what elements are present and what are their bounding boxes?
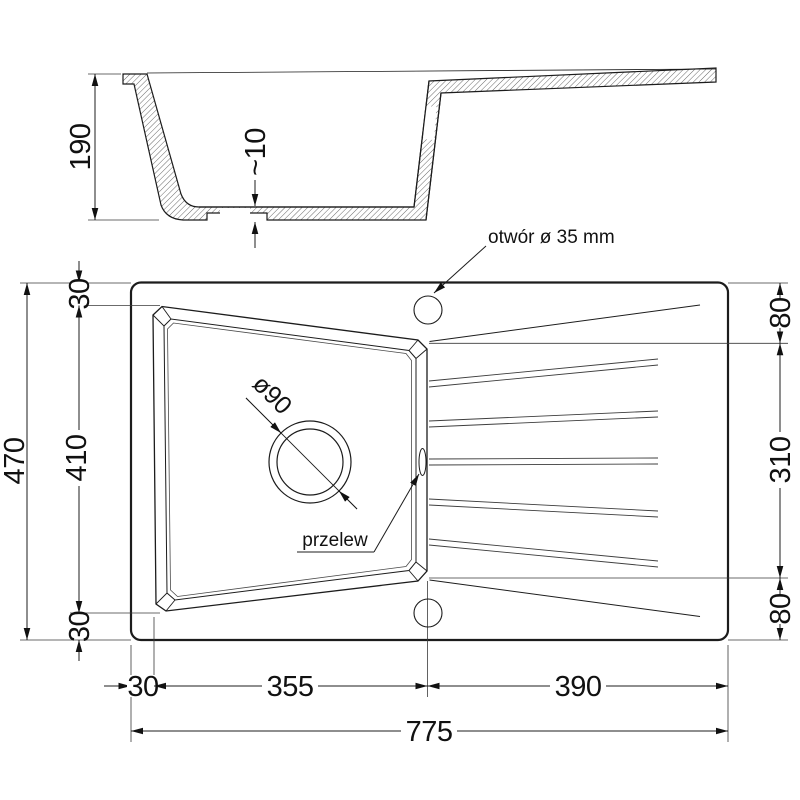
dim-left-bottom-label: 30 — [64, 611, 96, 642]
dim-bottom-drainer-label: 390 — [555, 671, 602, 703]
dim-right-top: 80 — [765, 283, 797, 343]
technical-drawing: 190 ~10 — [0, 0, 800, 800]
tap-hole-top — [414, 296, 442, 324]
dim-bottom-edge: 30 — [104, 671, 159, 703]
dim-bottom-total: 775 — [131, 716, 728, 748]
dim-right-middle: 310 — [765, 343, 797, 578]
overflow-slot — [419, 449, 426, 476]
drain: ø90 — [246, 370, 357, 509]
drainer-bottom-edge — [430, 580, 701, 617]
section-body-outline — [123, 68, 716, 220]
dim-left-middle-label: 410 — [61, 435, 93, 482]
dim-left-total: 470 — [0, 283, 31, 640]
dim-section-bottom-label: ~10 — [240, 128, 272, 176]
dim-left-middle: 410 — [61, 306, 93, 614]
overflow-label: przelew — [302, 530, 368, 551]
dim-left-top-label: 30 — [64, 278, 96, 309]
dim-bottom-bowl: 355 — [154, 671, 428, 703]
plan-bowl-inner-rim — [164, 319, 416, 600]
dim-section-height-label: 190 — [65, 124, 97, 171]
overflow: przelew — [297, 449, 426, 553]
section-view: 190 ~10 — [65, 68, 716, 248]
dim-left-top: 30 — [64, 261, 96, 310]
drain-diameter-label: ø90 — [247, 370, 297, 420]
section-drain-gap — [220, 208, 250, 220]
plan-bowl-inner-rim2 — [168, 323, 412, 597]
dim-right-bottom: 80 — [765, 578, 797, 640]
drainer-top-edge — [430, 305, 701, 342]
dim-bottom-bowl-label: 355 — [267, 671, 314, 703]
dim-left-total-label: 470 — [0, 438, 31, 485]
plan-view: ø90 przelew otwór ø 35 mm 470 — [0, 227, 797, 748]
plan-drainer — [429, 305, 700, 617]
drawing-canvas: 190 ~10 — [0, 0, 800, 800]
tap-hole-bottom — [414, 599, 442, 627]
dim-left-bottom: 30 — [64, 611, 96, 661]
dim-right-bottom-label: 80 — [765, 593, 797, 624]
dim-bottom-drainer: 390 — [428, 671, 729, 703]
faucet-hole-label: otwór ø 35 mm — [488, 227, 615, 248]
dim-right-top-label: 80 — [765, 297, 797, 328]
plan-bowl-corner-facets — [153, 307, 427, 612]
drainer-grooves — [429, 359, 658, 567]
plan-sink-outline — [131, 283, 728, 641]
dim-section-bottom-thickness: ~10 — [240, 125, 272, 248]
dim-bottom-total-label: 775 — [406, 716, 453, 748]
plan-bowl-outer-rim — [153, 307, 427, 612]
dim-right-middle-label: 310 — [765, 437, 797, 484]
dim-bottom-edge-label: 30 — [127, 671, 158, 703]
